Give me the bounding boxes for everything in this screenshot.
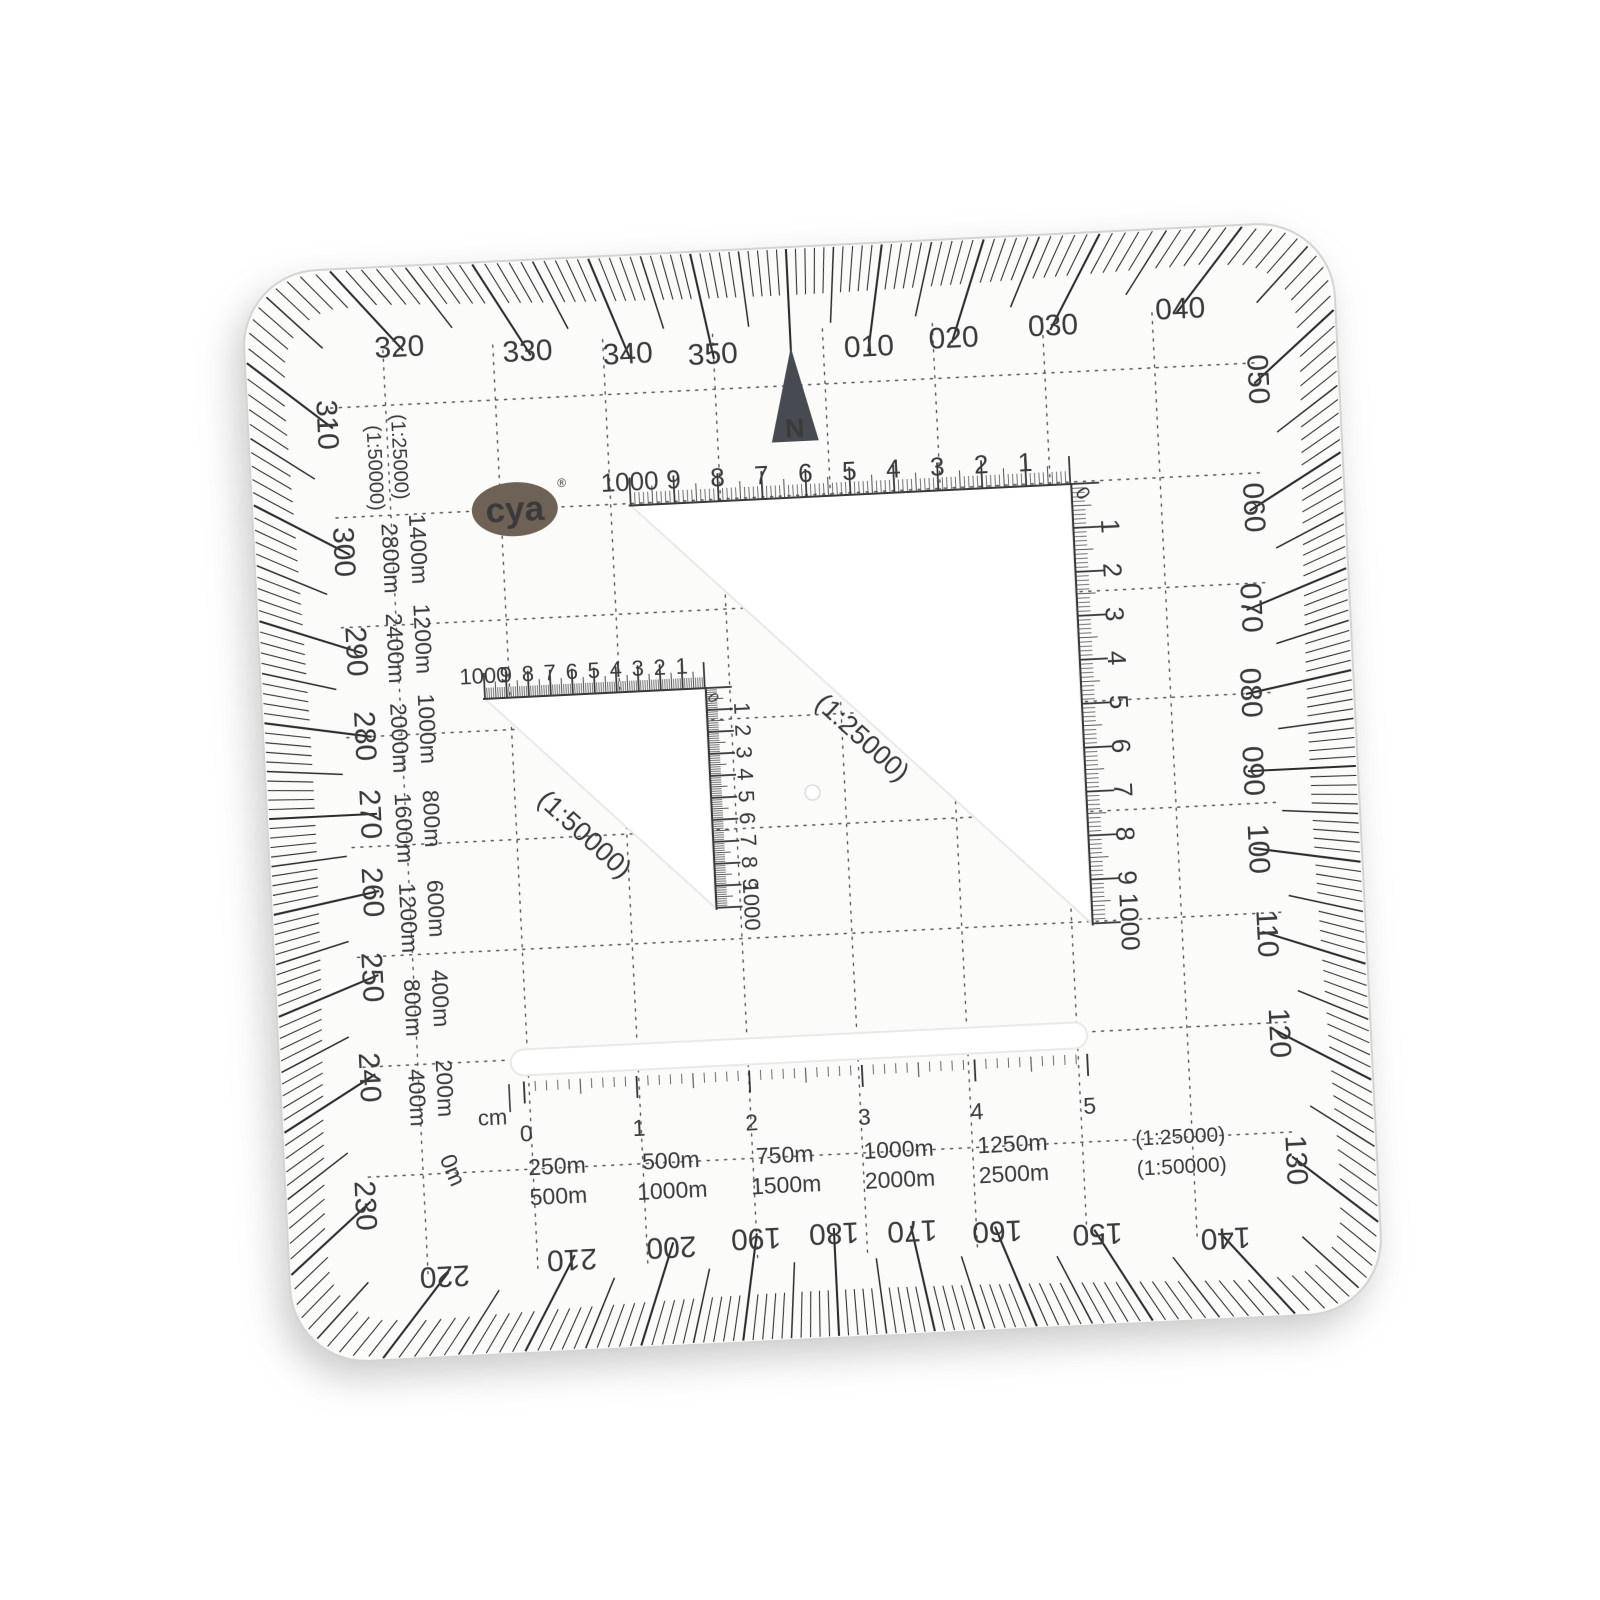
ruler-tick (1088, 800, 1100, 801)
ruler-25k-side-number: 3 (1099, 606, 1130, 622)
ruler-tick (1082, 686, 1094, 687)
ruler-tick (709, 489, 710, 501)
ruler-tick (1043, 472, 1044, 484)
ruler-tick (1078, 602, 1090, 603)
ruler-tick (1075, 540, 1087, 541)
ruler-tick (903, 479, 904, 491)
ruler-tick (1080, 642, 1092, 643)
ruler-tick (1074, 514, 1086, 515)
ruler-tick (1074, 519, 1086, 520)
distance-label-25k: 1250m (977, 1129, 1049, 1158)
ruler-tick (1087, 778, 1099, 779)
ruler-tick (727, 488, 728, 500)
ruler-tick (1065, 471, 1066, 483)
azimuth-label: 340 (602, 336, 654, 371)
ruler-tick (973, 476, 974, 488)
azimuth-label: 120 (1262, 1007, 1297, 1059)
square-protractor: 0100200300400500600700800901001101201301… (239, 219, 1386, 1366)
ruler-tick (1075, 545, 1087, 546)
ruler-tick (951, 477, 952, 489)
azimuth-label: 270 (352, 788, 387, 840)
ruler-tick (1080, 646, 1092, 647)
cm-number: 1 (632, 1115, 646, 1142)
ruler-tick (1085, 743, 1097, 744)
distance-label-50k: 500m (529, 1182, 588, 1211)
ruler-25k-side-number: 2 (1097, 562, 1128, 578)
ruler-tick (964, 476, 965, 488)
cm-tick (1087, 1054, 1088, 1076)
azimuth-label: 330 (502, 334, 554, 369)
azimuth-label: 260 (355, 867, 390, 919)
ruler-25k-top-number: 2 (973, 449, 989, 480)
cm-tick (749, 1070, 750, 1092)
ruler-50k-top-number: 4 (609, 657, 622, 683)
ruler-50k-side-number: 4 (732, 768, 758, 781)
ruler-tick (1092, 896, 1104, 897)
ruler-tick (1085, 751, 1097, 752)
ruler-tick (1082, 690, 1094, 691)
ruler-tick (1079, 620, 1091, 621)
ruler-tick (823, 483, 824, 495)
ruler-50k-top-number: 6 (565, 659, 578, 685)
ruler-tick (1093, 914, 1105, 915)
cm-number: 4 (970, 1098, 984, 1125)
azimuth-label: 200 (646, 1229, 698, 1264)
cm-unit-label: cm (477, 1104, 508, 1130)
ruler-tick (1090, 839, 1102, 840)
ruler-tick (539, 679, 540, 695)
ruler-25k-top-number: 1 (1017, 447, 1033, 478)
ruler-tick (665, 491, 666, 503)
azimuth-label: 250 (354, 952, 389, 1004)
ruler-tick (1012, 474, 1013, 486)
ruler-tick (1085, 738, 1097, 739)
ruler-tick (969, 476, 970, 488)
ruler-tick (1052, 472, 1053, 484)
ruler-tick (1081, 664, 1093, 665)
ruler-tick (1079, 628, 1091, 629)
ruler-tick (1078, 611, 1090, 612)
ruler-tick (671, 673, 672, 689)
ruler-tick (1083, 707, 1095, 708)
ruler-tick (1078, 598, 1090, 599)
brand-name: cya (485, 489, 546, 531)
cm-tick (580, 1079, 581, 1094)
center-hole (805, 785, 821, 801)
ruler-50k-top-number: 7 (543, 660, 556, 686)
ruler-tick (832, 483, 833, 495)
ruler-tick (1086, 765, 1098, 766)
ruler-tick (716, 874, 732, 875)
ruler-25k-top-number: 4 (885, 453, 901, 484)
ruler-50k-top-number: 3 (631, 656, 644, 682)
ruler-tick (990, 475, 991, 487)
ruler-tick (1076, 562, 1088, 563)
azimuth-label: 280 (347, 710, 382, 762)
ruler-50k-side-number: 1 (729, 702, 755, 715)
azimuth-label: 290 (338, 626, 373, 678)
distance-label-25k: 750m (755, 1140, 814, 1169)
cm-tick (918, 1062, 919, 1077)
ruler-tick (1086, 760, 1098, 761)
ruler-tick (1090, 853, 1102, 854)
cm-number: 3 (857, 1104, 871, 1131)
ruler-25k-top-number: 6 (797, 458, 813, 489)
ruler-tick (1056, 472, 1057, 484)
ruler-tick (1061, 471, 1062, 483)
ruler-50k-top-number: 8 (521, 661, 534, 687)
ruler-tick (627, 675, 628, 691)
ruler-tick (797, 484, 798, 496)
ruler-tick (819, 483, 820, 495)
ruler-50k-top-number: 9 (499, 662, 512, 688)
ruler-tick (1081, 672, 1093, 673)
product-photo-stage: 0100200300400500600700800901001101201301… (0, 0, 1600, 1600)
azimuth-label: 150 (1072, 1216, 1124, 1251)
azimuth-label: 060 (1236, 482, 1271, 534)
distance-label-50k: 1000m (637, 1176, 709, 1205)
ruler-tick (753, 487, 754, 499)
ruler-tick (649, 674, 650, 690)
ruler-tick (1084, 734, 1096, 735)
ruler-tick (995, 475, 996, 487)
ruler-tick (683, 490, 684, 502)
left-distance-25k: 600m (422, 879, 451, 938)
ruler-tick (1083, 694, 1095, 695)
ruler-50k-side-number: 5 (733, 790, 759, 803)
ruler-50k-top-number: 2 (653, 655, 666, 681)
ruler-tick (1039, 473, 1040, 485)
cm-tick (1031, 1057, 1032, 1072)
ruler-tick (876, 481, 877, 493)
ruler-25k-side-number: 4 (1101, 650, 1132, 666)
ruler-tick (1087, 782, 1099, 783)
ruler-50k-top-number: 5 (587, 658, 600, 684)
ruler-tick (1092, 888, 1104, 889)
ruler-50k-side-number: 6 (734, 812, 760, 825)
ruler-tick (1084, 729, 1096, 730)
azimuth-label: 190 (730, 1221, 782, 1256)
ruler-25k-side-number: 8 (1110, 826, 1141, 842)
ruler-tick (1077, 589, 1089, 590)
ruler-tick (1086, 756, 1098, 757)
ruler-tick (1091, 870, 1103, 871)
ruler-tick (1087, 795, 1099, 796)
azimuth-label: 170 (886, 1213, 938, 1248)
ruler-tick (775, 485, 776, 497)
cm-tick (636, 1076, 637, 1098)
ruler-tick (837, 482, 838, 494)
ruler-tick (999, 474, 1000, 486)
ruler-tick (712, 786, 728, 787)
ruler-25k-top-number: 5 (841, 456, 857, 487)
ruler-tick (1094, 918, 1106, 919)
azimuth-label: 320 (374, 330, 426, 365)
cm-tick (862, 1065, 863, 1087)
ruler-tick (1083, 712, 1095, 713)
azimuth-label: 180 (808, 1215, 860, 1250)
cm-tick (974, 1059, 975, 1081)
ruler-tick (1087, 787, 1099, 788)
ruler-tick (1089, 817, 1101, 818)
protractor-plate-wrapper: 0100200300400500600700800901001101201301… (239, 219, 1386, 1366)
cm-number: 5 (1083, 1093, 1097, 1120)
ruler-tick (692, 490, 693, 502)
ruler-tick (708, 720, 724, 721)
ruler-tick (583, 677, 584, 693)
ruler-tick (881, 480, 882, 492)
ruler-tick (561, 678, 562, 694)
ruler-tick (605, 676, 606, 692)
ruler-tick (714, 830, 730, 831)
left-distance-25k: 800m (417, 789, 446, 848)
left-distance-50k: 800m (399, 978, 428, 1037)
azimuth-label: 020 (928, 320, 980, 355)
ruler-tick (1091, 866, 1103, 867)
ruler-tick (1079, 624, 1091, 625)
ruler-25k-top-number: 3 (929, 451, 945, 482)
ruler-25k-side-number: 5 (1104, 694, 1135, 710)
ruler-tick (1076, 554, 1088, 555)
left-distance-50k: 2400m (381, 612, 410, 684)
azimuth-label: 050 (1240, 354, 1275, 406)
left-distance-25k: 200m (431, 1059, 460, 1118)
cm-tick (524, 1081, 525, 1103)
ruler-tick (1090, 848, 1102, 849)
ruler-tick (1088, 809, 1100, 810)
ruler-tick (1075, 536, 1087, 537)
azimuth-label: 160 (971, 1213, 1023, 1248)
ruler-tick (1092, 883, 1104, 884)
ruler-tick (1093, 905, 1105, 906)
left-distance-50k: 400m (403, 1068, 432, 1127)
azimuth-label: 300 (326, 526, 361, 578)
azimuth-label: 110 (1249, 909, 1284, 958)
left-header-25k: (1:25000) (386, 413, 412, 500)
ruler-tick (1082, 677, 1094, 678)
ruler-tick (1091, 874, 1103, 875)
ruler-tick (736, 487, 737, 499)
ruler-tick (788, 485, 789, 497)
ruler-tick (1077, 580, 1089, 581)
azimuth-label: 240 (352, 1052, 387, 1104)
ruler-tick (661, 491, 662, 503)
ruler-tick (1088, 804, 1100, 805)
distance-label-50k: 2000m (864, 1164, 936, 1193)
ruler-tick (859, 481, 860, 493)
ruler-tick (1008, 474, 1009, 486)
ruler-tick (709, 742, 725, 743)
azimuth-label: 010 (843, 329, 895, 364)
ruler-tick (907, 479, 908, 491)
ruler-tick (925, 478, 926, 490)
ruler-tick (517, 680, 518, 696)
distance-label-50k: 1500m (750, 1170, 822, 1199)
ruler-tick (749, 487, 750, 499)
ruler-tick (929, 478, 930, 490)
ruler-tick (1084, 721, 1096, 722)
ruler-tick (711, 764, 727, 765)
ruler-50k-top-number: 1 (675, 654, 688, 680)
ruler-tick (1080, 633, 1092, 634)
ruler-tick (1081, 668, 1093, 669)
azimuth-label: 130 (1278, 1134, 1313, 1186)
ruler-tick (1092, 892, 1104, 893)
ruler-tick (863, 481, 864, 493)
ruler-tick (713, 808, 729, 809)
ruler-tick (1081, 655, 1093, 656)
left-distance-25k: 1400m (404, 513, 433, 585)
ruler-25k-top-number: 7 (753, 460, 769, 491)
distance-label-25k: 1000m (863, 1135, 935, 1164)
ruler-tick (1034, 473, 1035, 485)
cm-tick (805, 1068, 806, 1083)
ruler-25k-top-number: 9 (666, 464, 682, 495)
azimuth-label: 310 (309, 399, 344, 451)
ruler-25k-top-number: 1000 (600, 465, 659, 498)
ruler-tick (715, 852, 731, 853)
ruler-tick (1089, 831, 1101, 832)
north-letter: N (784, 413, 805, 444)
left-distance-50k: 1200m (394, 882, 423, 954)
distance-label-25k: 500m (641, 1146, 700, 1175)
ruler-tick (1089, 826, 1101, 827)
ruler-tick (955, 477, 956, 489)
ruler-tick (1093, 910, 1105, 911)
ruler-50k-side-number: 2 (730, 724, 756, 737)
ruler-tick (920, 478, 921, 490)
azimuth-label: 080 (1233, 667, 1268, 719)
ruler-tick (841, 482, 842, 494)
ruler-tick (771, 486, 772, 498)
distance-label-50k: 2500m (978, 1159, 1050, 1188)
ruler-25k-top-number: 8 (710, 462, 726, 493)
ruler-tick (1091, 861, 1103, 862)
left-header-50k: (1:50000) (362, 425, 388, 512)
ruler-tick (731, 488, 732, 500)
left-distance-25k: 1200m (408, 603, 437, 675)
ruler-tick (793, 485, 794, 497)
ruler-50k-side-number: 8 (736, 855, 762, 868)
left-distance-50k: 2800m (376, 523, 405, 595)
ruler-tick (1080, 650, 1092, 651)
ruler-tick (1090, 844, 1102, 845)
ruler-tick (705, 489, 706, 501)
azimuth-label: 350 (687, 337, 739, 372)
ruler-tick (1077, 584, 1089, 585)
ruler-tick (947, 477, 948, 489)
ruler-tick (1078, 606, 1090, 607)
ruler-tick (1076, 567, 1088, 568)
azimuth-label: 070 (1233, 582, 1268, 634)
ruler-tick (1075, 532, 1087, 533)
left-distance-50k: 2000m (385, 702, 414, 774)
cm-number: 2 (745, 1109, 759, 1136)
ruler-50k-side-number: 3 (731, 746, 757, 759)
cm-tick (693, 1073, 694, 1088)
cm-number: 0 (519, 1120, 533, 1147)
ruler-tick (1076, 558, 1088, 559)
ruler-tick (1017, 474, 1018, 486)
azimuth-label: 230 (348, 1180, 383, 1232)
left-distance-25k: 1000m (413, 693, 442, 765)
ruler-25k-side-number: 9 (1112, 870, 1143, 886)
ruler-tick (780, 485, 781, 497)
left-distance-50k: 1600m (390, 792, 419, 864)
ruler-tick (700, 489, 701, 501)
ruler-tick (687, 490, 688, 502)
ruler-tick (1086, 773, 1098, 774)
ruler-tick (1074, 510, 1086, 511)
ruler-tick (693, 672, 694, 688)
azimuth-label: 040 (1154, 291, 1206, 326)
azimuth-label: 100 (1241, 823, 1276, 875)
azimuth-label: 220 (419, 1258, 471, 1293)
ruler-25k-side-number: 1 (1095, 518, 1126, 534)
azimuth-label: 090 (1235, 745, 1270, 797)
ruler-tick (1074, 523, 1086, 524)
ruler-tick (867, 481, 868, 493)
ruler-tick (717, 896, 733, 897)
ruler-25k-side-number: 7 (1108, 782, 1139, 798)
ruler-tick (1083, 699, 1095, 700)
azimuth-label: 030 (1027, 308, 1079, 343)
ruler-25k-side-number: 6 (1106, 738, 1137, 754)
ruler-tick (1089, 822, 1101, 823)
left-distance-25k: 400m (426, 969, 455, 1028)
ruler-tick (744, 487, 745, 499)
ruler-tick (815, 484, 816, 496)
ruler-50k-side-number: 1000 (738, 881, 765, 931)
distance-label-25k: 250m (528, 1152, 587, 1181)
ruler-tick (885, 480, 886, 492)
azimuth-label: 140 (1200, 1220, 1252, 1255)
ruler-tick (911, 479, 912, 491)
bottom-ratio-50k: (1:50000) (1136, 1153, 1227, 1180)
azimuth-label: 210 (546, 1242, 598, 1277)
ruler-25k-side-number: 1000 (1113, 892, 1146, 951)
bottom-ratio-25k: (1:25000) (1135, 1123, 1226, 1150)
registered-mark: ® (557, 476, 567, 490)
ruler-tick (1077, 576, 1089, 577)
ruler-tick (1084, 716, 1096, 717)
ruler-50k-side-number: 7 (735, 833, 761, 846)
